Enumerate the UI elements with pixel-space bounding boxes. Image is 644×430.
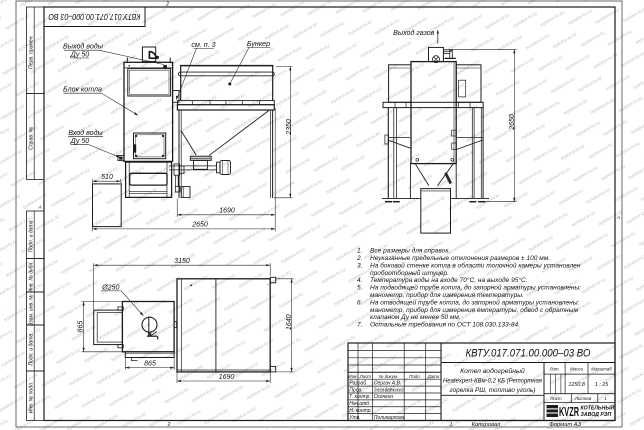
svg-text:Т. контр.: Т. контр. [349,394,371,400]
svg-text:Разраб.: Разраб. [349,380,367,386]
svg-text:1250,8: 1250,8 [568,382,585,388]
svg-text:Взам. инв. №: Взам. инв. № [29,294,35,326]
svg-text:2.: 2. [356,255,363,262]
svg-text:КОТЕЛЬНЫЙ: КОТЕЛЬНЫЙ [581,403,615,411]
svg-text:Инв. № дубл.: Инв. № дубл. [29,261,35,292]
svg-text:Пров.: Пров. [349,387,362,393]
svg-text:А: А [616,215,620,221]
svg-text:Нач.отд.: Нач.отд. [349,401,370,407]
svg-text:КВТУ.017.071.00.000–03 ВО: КВТУ.017.071.00.000–03 ВО [49,12,141,21]
svg-text:865: 865 [144,360,156,367]
svg-text:2: 2 [167,422,171,428]
svg-text:Все размеры для справок.: Все размеры для справок. [370,247,450,255]
svg-text:2350: 2350 [286,119,293,136]
svg-text:Котел водогрейный: Котел водогрейный [460,367,525,375]
svg-text:5.: 5. [357,285,363,292]
svg-text:2650: 2650 [191,222,208,229]
svg-text:2: 2 [165,2,169,8]
svg-text:Лист: Лист [359,374,372,379]
svg-text:Формат А3: Формат А3 [549,422,581,428]
svg-text:Перв. примен.: Перв. примен. [29,35,35,69]
svg-text:1690: 1690 [219,374,235,381]
svg-text:Ø250: Ø250 [101,283,119,291]
svg-text:1: 1 [450,422,453,428]
svg-text:На боковой стенке котла в обла: На боковой стенке котла в области топочн… [370,261,581,269]
svg-text:манометр, прибор для измерения: манометр, прибор для измерения емператур… [370,306,578,314]
svg-text:Инв. № подл.: Инв. № подл. [29,382,35,414]
svg-text:На подводящей трубе котла, до: На подводящей трубе котла, до запорной а… [370,284,581,292]
svg-text:Осечкин: Осечкин [374,394,394,400]
svg-text:3150: 3150 [174,258,190,265]
svg-text:На отводящей трубе котла, до з: На отводящей трубе котла, до запорной ар… [370,298,580,306]
svg-text:Подп. и дата: Подп. и дата [29,220,35,252]
svg-text:1.: 1. [357,248,363,255]
svg-text:Масса: Масса [570,366,584,371]
svg-text:Подп. и дата: Подп. и дата [29,334,35,366]
svg-text:манометр, прибор для измерения: манометр, прибор для измерения температу… [370,291,524,299]
svg-text:Блок котла: Блок котла [63,86,102,94]
svg-text:1: 1 [604,396,607,401]
svg-text:Дата: Дата [427,374,440,379]
svg-text:Ду 50: Ду 50 [70,51,90,59]
svg-text:Остальные требования по ОСТ 10: Остальные требования по ОСТ 108.030.133-… [370,321,520,329]
svg-text:А: А [37,205,41,211]
svg-text:510: 510 [101,174,113,181]
svg-text:Бункер: Бункер [247,40,270,48]
svg-text:3.: 3. [357,262,363,269]
svg-text:4.: 4. [357,277,363,284]
svg-text:пробоотборный штуцер.: пробоотборный штуцер. [370,269,449,277]
svg-text:Heatexpert-КВм-0,2 КБ (Ретортн: Heatexpert-КВм-0,2 КБ (Ретортная [443,377,543,384]
svg-text:Справ. №: Справ. № [29,126,35,150]
svg-text:Неуказанные предельные отклоне: Неуказанные предельные отклонения размер… [370,254,550,262]
svg-text:Онегов-Вережинский: Онегов-Вережинский [374,386,404,393]
svg-text:1640: 1640 [286,314,293,330]
svg-text:KVZR: KVZR [559,405,579,419]
svg-text:Масштаб: Масштаб [591,366,612,371]
svg-text:Температура воды на входе 70°С: Температура воды на входе 70°С, на выход… [370,276,528,284]
svg-text:Сергач А.В.: Сергач А.В. [374,380,401,386]
svg-text:Вход воды: Вход воды [68,129,103,137]
svg-text:клапаном Ду не менее 50 мм.: клапаном Ду не менее 50 мм. [370,314,461,321]
svg-text:Лист: Лист [549,396,562,401]
svg-text:7.: 7. [357,322,363,329]
svg-text:КВТУ.017.071.00.000–03 ВО: КВТУ.017.071.00.000–03 ВО [466,348,591,360]
svg-text:Изм.: Изм. [348,374,357,379]
svg-text:Выход воды: Выход воды [63,43,104,51]
svg-text:№ докум.: № докум. [379,374,398,379]
svg-text:1 : 25: 1 : 25 [595,382,609,388]
svg-text:Лит.: Лит. [548,366,559,371]
svg-text:Утв.: Утв. [349,415,360,421]
svg-text:см. п. 3: см. п. 3 [191,41,215,49]
svg-text:6.: 6. [357,299,363,306]
svg-text:1690: 1690 [219,208,235,215]
svg-text:Выход газов: Выход газов [393,29,435,37]
svg-text:Листов: Листов [574,396,592,401]
svg-text:Ду 50: Ду 50 [70,137,90,145]
svg-text:ЗАВОД РЭП: ЗАВОД РЭП [581,412,612,418]
svg-text:Копировал: Копировал [472,422,502,428]
svg-text:2650: 2650 [509,114,516,131]
svg-text:горелка РШ, топливо уголь): горелка РШ, топливо уголь) [450,387,536,394]
svg-text:Н. контр.: Н. контр. [349,408,372,414]
svg-text:Подп.: Подп. [409,374,421,379]
svg-text:Поликарпова: Поликарпова [374,415,405,421]
svg-text:865: 865 [78,321,85,333]
